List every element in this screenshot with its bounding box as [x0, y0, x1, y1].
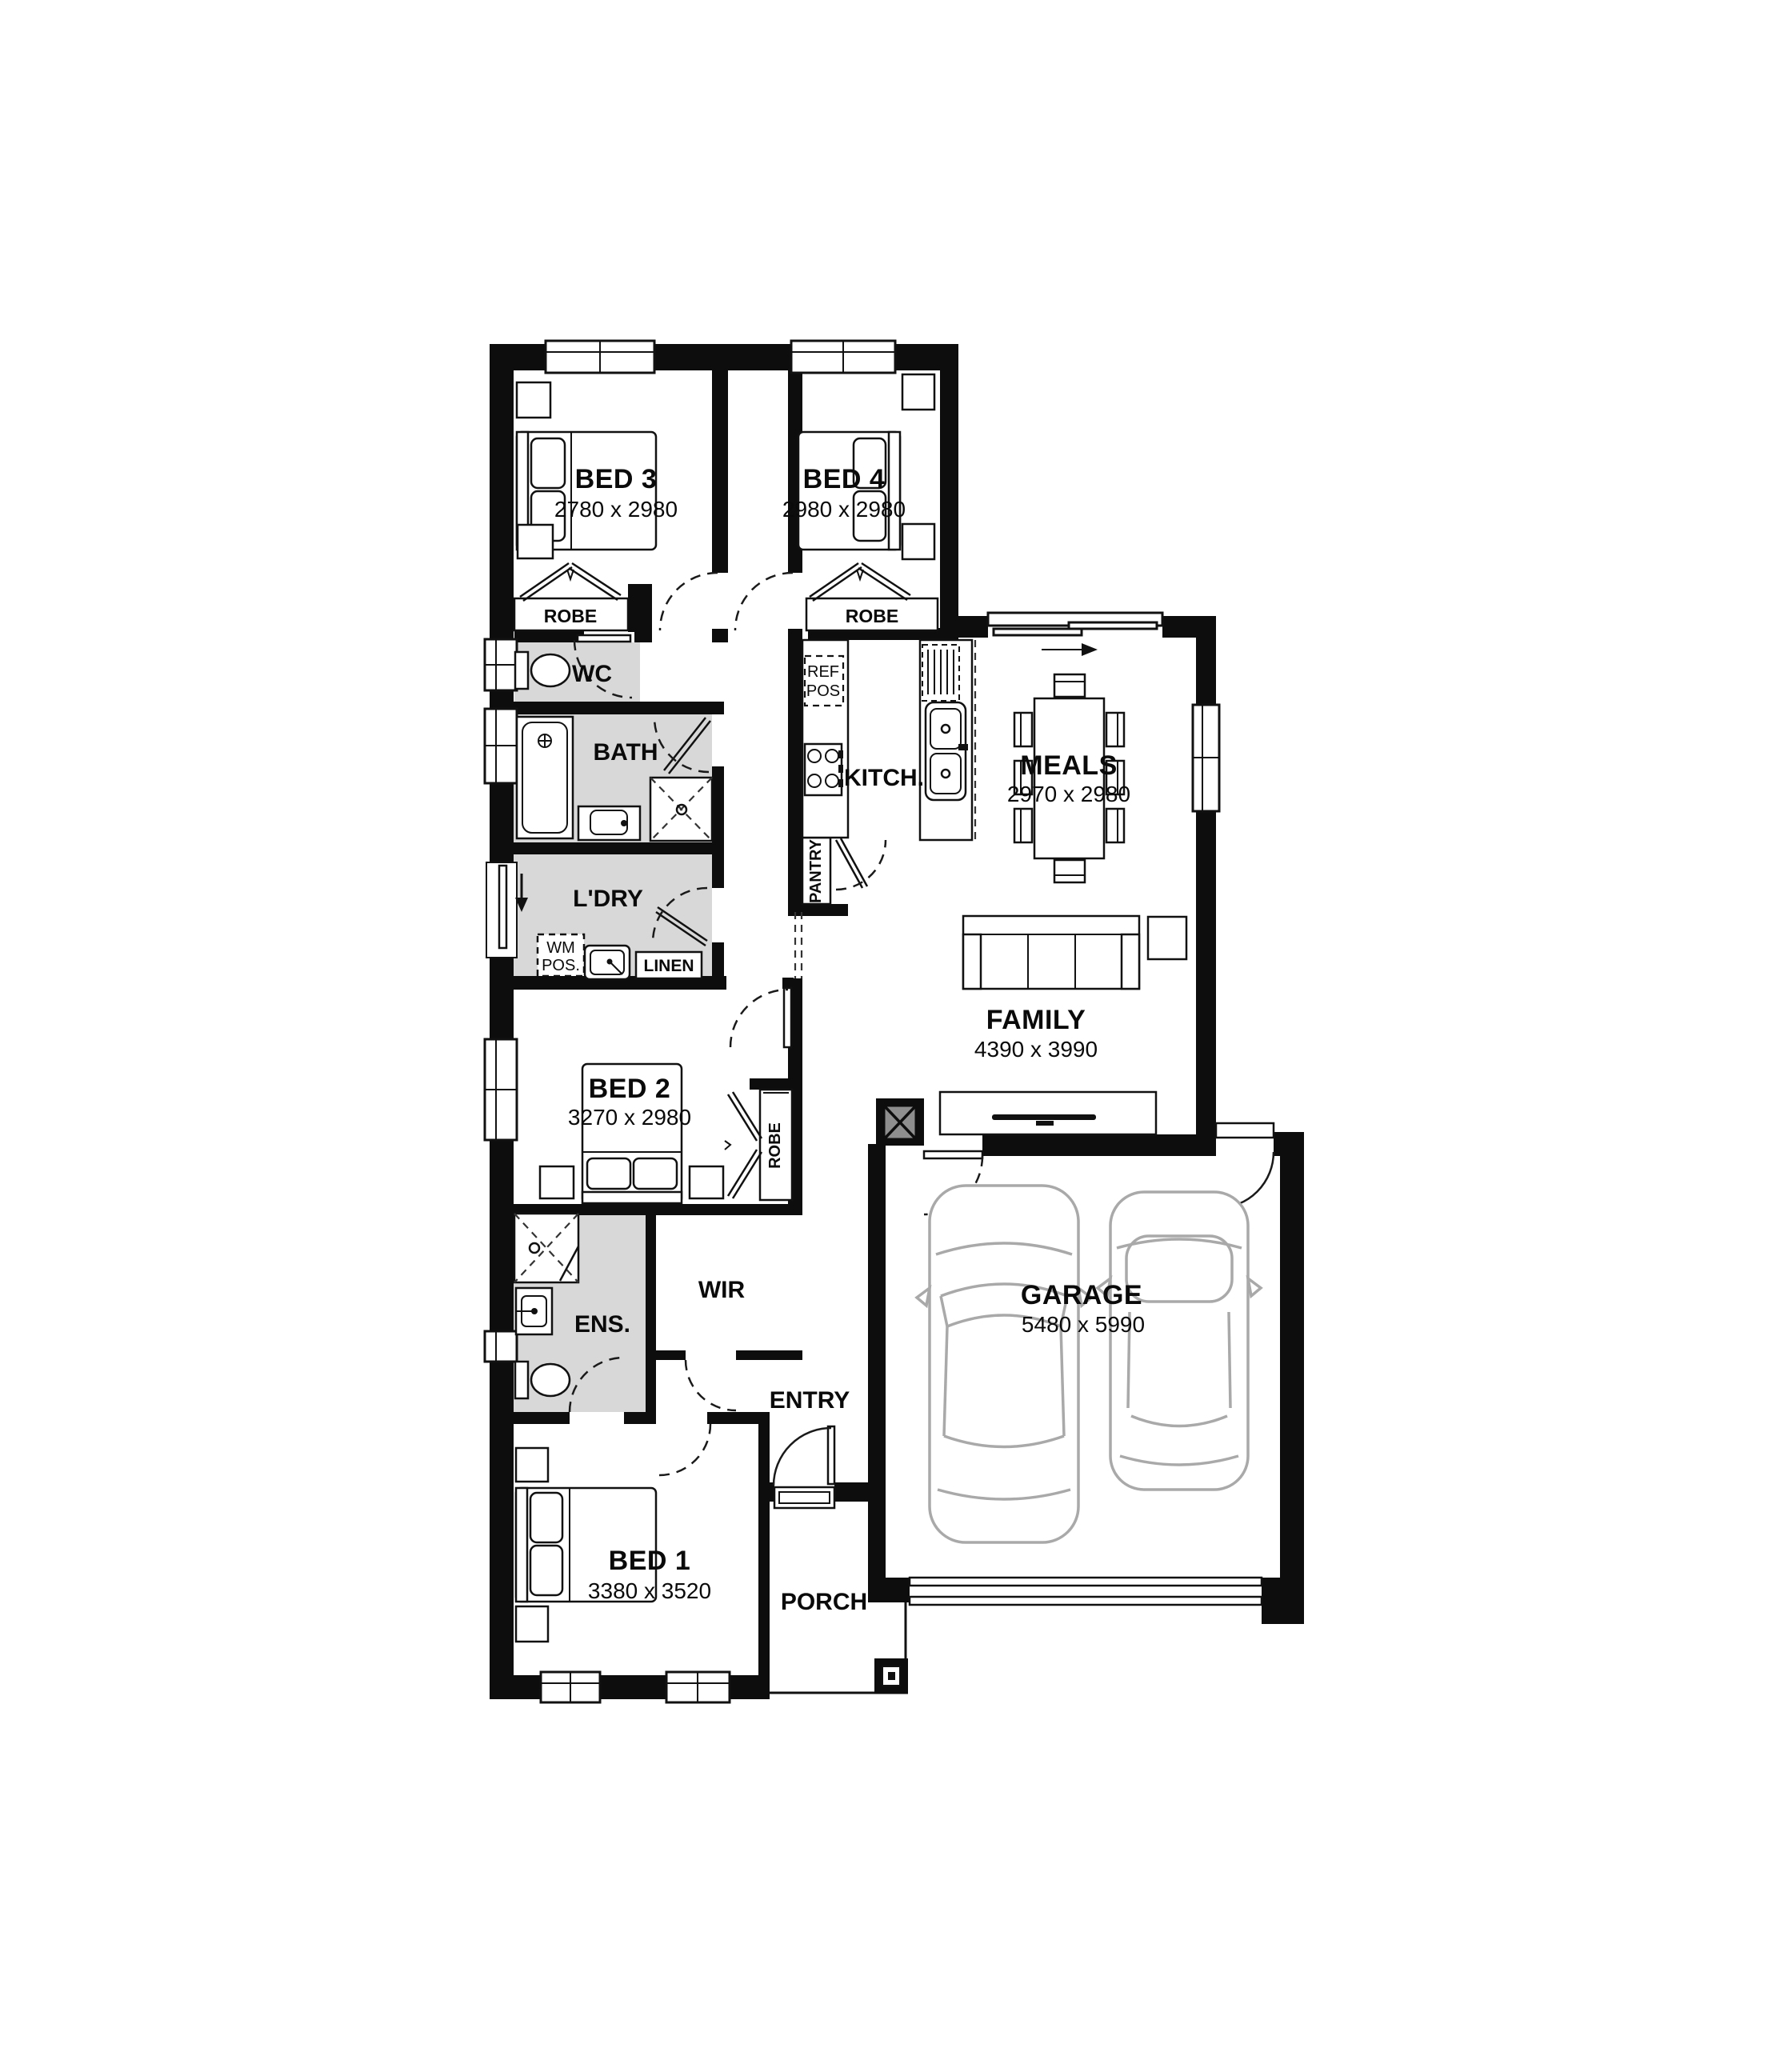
bed1-window-right: [666, 1672, 730, 1702]
island-bench: [920, 640, 975, 840]
bed1-window-left: [541, 1672, 600, 1702]
car-icon: [1098, 1192, 1261, 1490]
entry-label: ENTRY: [770, 1387, 850, 1414]
bed4-label: BED 4: [803, 464, 886, 494]
toilet-icon: [531, 1364, 570, 1396]
toilet-icon: [531, 654, 570, 686]
garage-label: GARAGE: [1021, 1280, 1142, 1310]
shower-icon: [514, 1214, 578, 1282]
bed4-dims: 2980 x 2980: [782, 497, 906, 522]
wm-label-2: POS.: [542, 957, 580, 974]
bed1-dims: 3380 x 3520: [588, 1578, 711, 1603]
garage-dims: 5480 x 5990: [1022, 1312, 1145, 1337]
bath-window: [485, 709, 517, 783]
ref-label-2: POS: [806, 682, 840, 700]
tv-icon: [992, 1114, 1096, 1120]
dining-chair: [1014, 713, 1032, 746]
bedside-table: [540, 1166, 574, 1198]
background: [0, 0, 1792, 2048]
porch-label: PORCH: [781, 1589, 867, 1615]
laundry-label: L'DRY: [573, 886, 643, 912]
wc-fixtures: [515, 652, 570, 689]
floorplan-page: { "plan": { "bed3": {"name": "BED 3", "d…: [0, 0, 1792, 2048]
bed2-robe-label: ROBE: [766, 1122, 784, 1169]
car-icon: [917, 1186, 1091, 1542]
toilet-cistern: [515, 1362, 528, 1398]
kitchen-label: KITCH.: [844, 765, 924, 791]
meals-dims: 2970 x 2980: [1007, 782, 1130, 806]
bed4-window: [791, 341, 895, 373]
sink-icon: [926, 702, 968, 800]
bath-label: BATH: [593, 739, 658, 766]
bedside-table: [902, 524, 934, 559]
bed3-window: [546, 341, 654, 373]
bed2-label: BED 2: [589, 1074, 671, 1104]
bedside-table: [516, 1606, 548, 1642]
meals-label: MEALS: [1020, 750, 1118, 781]
toilet-cistern: [515, 652, 528, 689]
bed1-label: BED 1: [609, 1546, 691, 1576]
wc-label: WC: [572, 661, 612, 687]
family-dims: 4390 x 3990: [974, 1037, 1098, 1062]
tv-unit: [940, 1092, 1156, 1134]
pantry-label: PANTRY: [807, 838, 825, 903]
wir-label: WIR: [698, 1277, 746, 1303]
bed2-window: [485, 1039, 517, 1140]
bedside-table: [690, 1166, 723, 1198]
bedside-table: [518, 525, 553, 558]
ref-label-1: REF: [807, 663, 839, 681]
shower-icon: [650, 778, 712, 841]
linen-label: LINEN: [644, 957, 694, 975]
structural-post: [876, 1098, 924, 1146]
floor-plan: BED 3 2780 x 2980 BED 4 2980 x 2980 ROBE…: [0, 0, 1792, 2048]
meals-window: [1193, 705, 1219, 811]
bed3-dims: 2780 x 2980: [554, 497, 678, 522]
bedside-table: [516, 1448, 548, 1482]
bedside-table: [902, 374, 934, 410]
bed2-dims: 3270 x 2980: [568, 1105, 691, 1130]
sofa-icon: [963, 916, 1139, 989]
dining-chair: [1054, 674, 1085, 697]
dining-chair: [1014, 809, 1032, 842]
dining-chair: [1054, 860, 1085, 882]
family-label: FAMILY: [986, 1005, 1086, 1035]
bed3-label: BED 3: [575, 464, 658, 494]
dining-chair: [1106, 809, 1124, 842]
ensuite-window: [485, 1331, 517, 1362]
wm-label-1: WM: [546, 939, 575, 957]
bed4-robe-label: ROBE: [846, 606, 898, 626]
bedside-table: [517, 382, 550, 418]
bed3-robe-label: ROBE: [544, 606, 597, 626]
dining-chair: [1106, 713, 1124, 746]
wc-window: [485, 639, 517, 690]
side-table: [1148, 917, 1186, 959]
cooktop-icon: [805, 744, 843, 795]
ensuite-label: ENS.: [574, 1311, 630, 1338]
